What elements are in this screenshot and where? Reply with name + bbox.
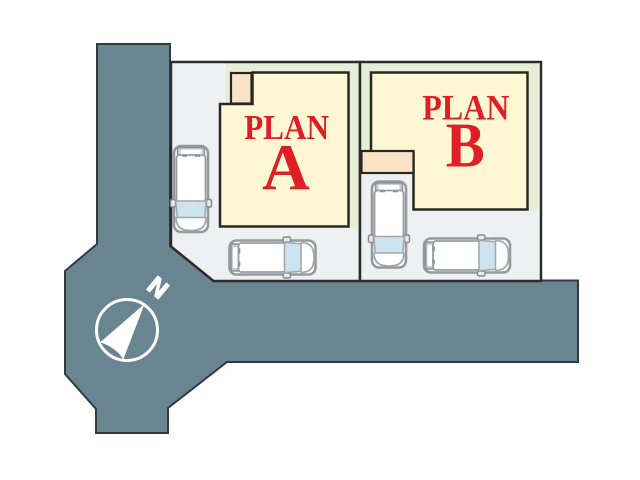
svg-text:B: B [446,111,485,181]
svg-text:A: A [262,132,310,205]
